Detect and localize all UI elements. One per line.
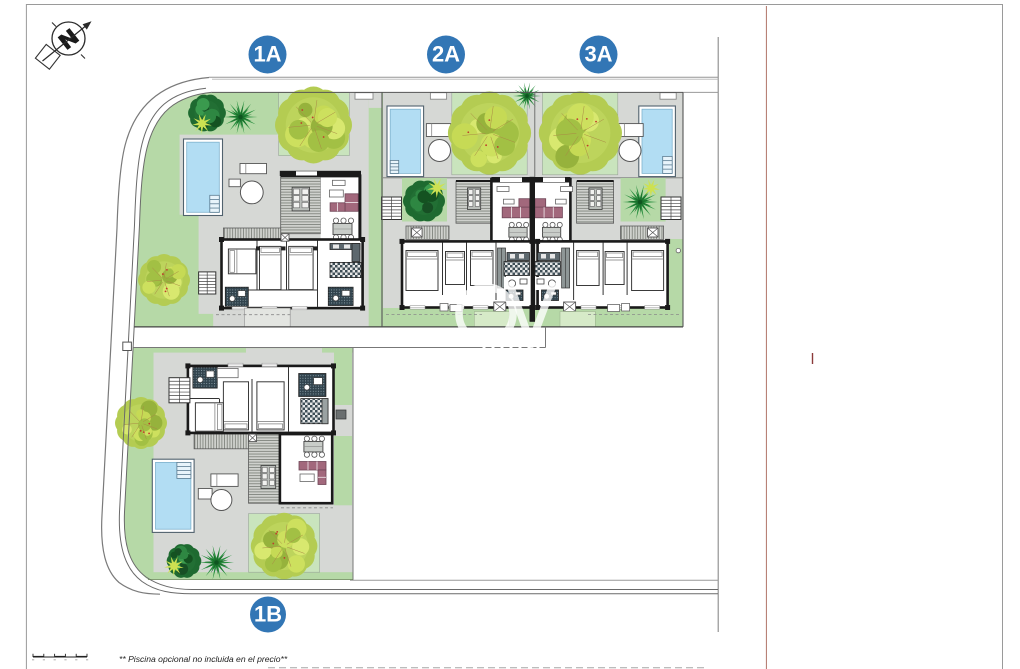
svg-text:** Piscina opcional no incluid: ** Piscina opcional no incluida en el pr… bbox=[119, 654, 288, 664]
svg-text:1A: 1A bbox=[253, 42, 281, 67]
svg-text:1B: 1B bbox=[254, 602, 282, 627]
svg-text:2A: 2A bbox=[432, 42, 460, 67]
svg-text:3A: 3A bbox=[584, 42, 612, 67]
